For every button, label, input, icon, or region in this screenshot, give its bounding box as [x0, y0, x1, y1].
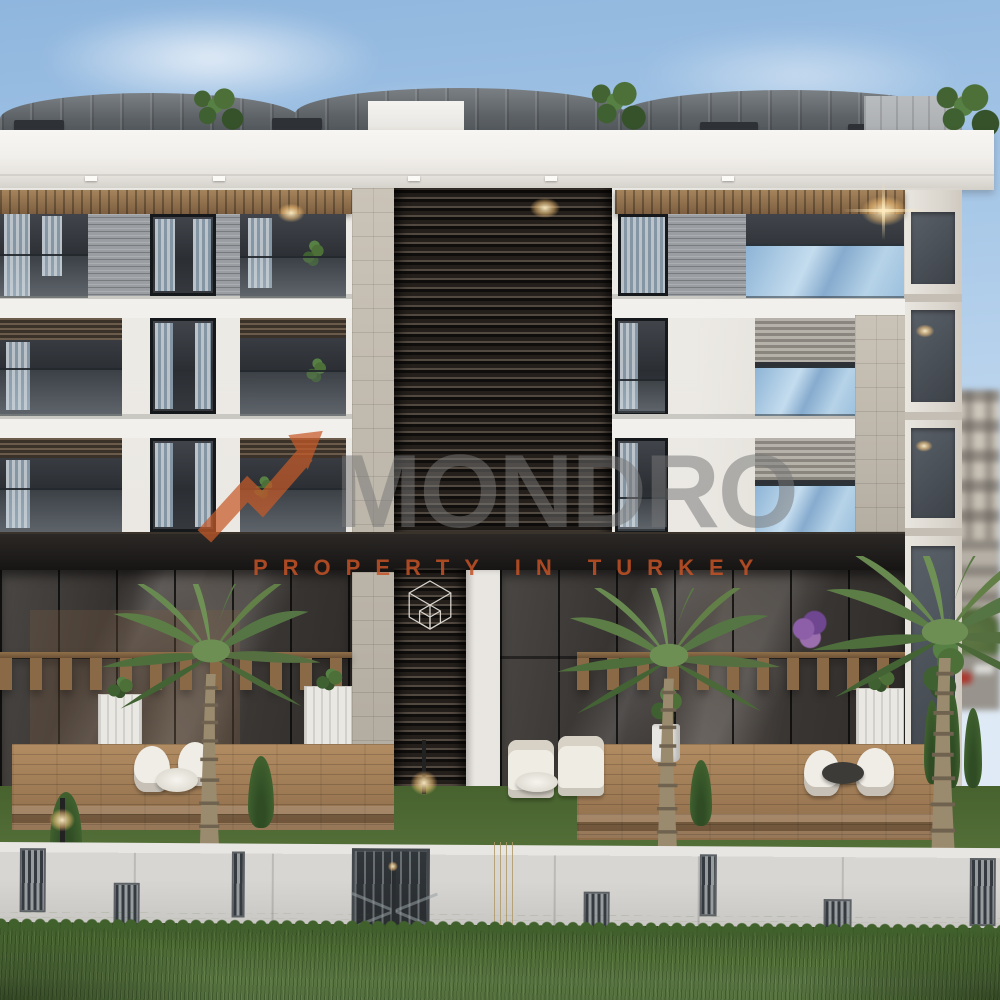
curtain — [155, 443, 173, 527]
curtain — [195, 323, 211, 409]
soffit-downlight — [524, 194, 566, 222]
siding-panel — [216, 214, 240, 296]
palm-tree — [92, 584, 330, 884]
soffit-downlight — [272, 200, 310, 226]
louvered-shade — [240, 318, 346, 338]
side-slab — [905, 528, 962, 536]
balcony-opening — [0, 318, 122, 414]
siding-panel — [88, 214, 150, 296]
orange-arrow-swoosh-icon — [195, 405, 330, 545]
white-pier — [466, 570, 500, 792]
grass-shadow — [790, 928, 1000, 1000]
watermark: MONDRO PROPERTY IN TURKEY — [195, 405, 885, 595]
wall-grille — [700, 854, 717, 916]
wall-light — [912, 322, 938, 340]
grass-shadow — [0, 928, 230, 1000]
bollard-glow — [44, 804, 80, 836]
glass-balustrade — [0, 368, 122, 416]
wall-grille — [970, 858, 996, 926]
gate-lamp-glow — [386, 859, 400, 873]
watermark-tagline: PROPERTY IN TURKEY — [253, 555, 768, 581]
watermark-brand: MONDRO — [335, 433, 797, 552]
glass-balustrade — [0, 488, 122, 534]
curtain — [621, 217, 665, 293]
bollard-glow — [405, 766, 443, 800]
light-flare — [882, 182, 885, 240]
roller-blind — [755, 318, 855, 362]
fascia-fixture — [722, 176, 734, 181]
fascia-ledge — [0, 174, 994, 176]
side-balcony — [911, 212, 955, 284]
fascia-fixture — [213, 176, 225, 181]
wall-grille — [232, 851, 245, 917]
side-slab — [905, 294, 962, 302]
balcony-opening — [0, 438, 122, 532]
curtain — [193, 219, 211, 291]
wall-grille — [20, 848, 46, 912]
side-slab — [905, 412, 962, 420]
fascia-fixture — [408, 176, 420, 181]
curtain — [155, 323, 173, 409]
balcony-opening — [240, 214, 346, 296]
curtain — [155, 219, 175, 291]
siding-panel — [668, 214, 746, 296]
palm-tree — [800, 556, 1000, 896]
window — [150, 318, 216, 414]
fascia-fixture — [545, 176, 557, 181]
glass-balustrade — [0, 254, 88, 298]
glass-balustrade — [240, 256, 346, 298]
window — [150, 214, 216, 296]
fascia-band — [0, 130, 994, 190]
glass-balustrade — [746, 244, 904, 298]
wall-light — [912, 438, 936, 454]
balcony-opening — [0, 214, 88, 296]
louvered-shade — [0, 318, 122, 340]
glazed-balcony — [755, 318, 855, 414]
window — [615, 318, 668, 414]
window — [618, 214, 668, 296]
louvered-shade — [0, 438, 122, 458]
architectural-render: MONDRO PROPERTY IN TURKEY — [0, 0, 1000, 1000]
balcony-opening — [240, 318, 346, 414]
fascia-fixture — [85, 176, 97, 181]
roof-vent — [272, 118, 322, 130]
